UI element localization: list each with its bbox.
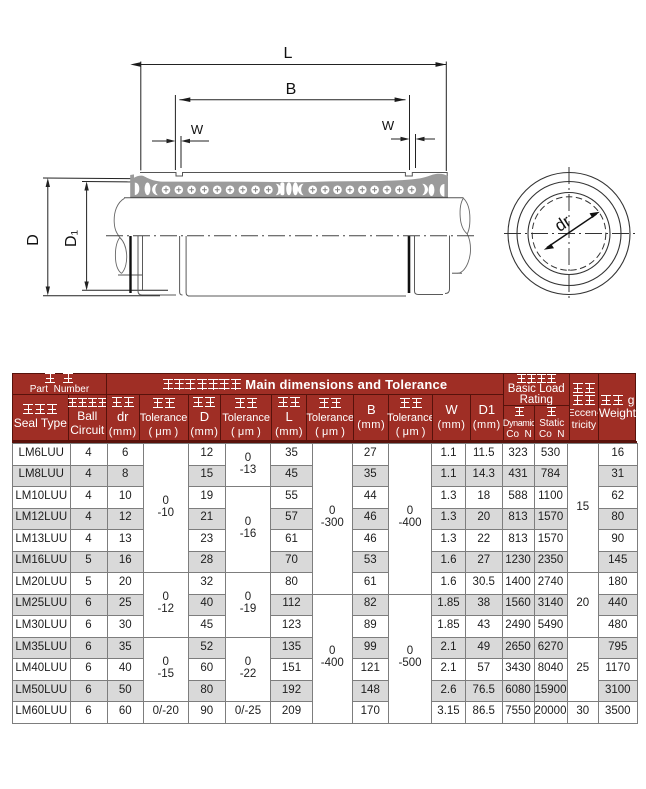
svg-text:W: W [382,118,395,133]
svg-text:L: L [284,45,293,62]
svg-text:D₁: D₁ [63,230,80,247]
svg-text:B: B [286,81,297,98]
svg-text:W: W [191,122,204,137]
svg-text:D: D [25,234,42,246]
